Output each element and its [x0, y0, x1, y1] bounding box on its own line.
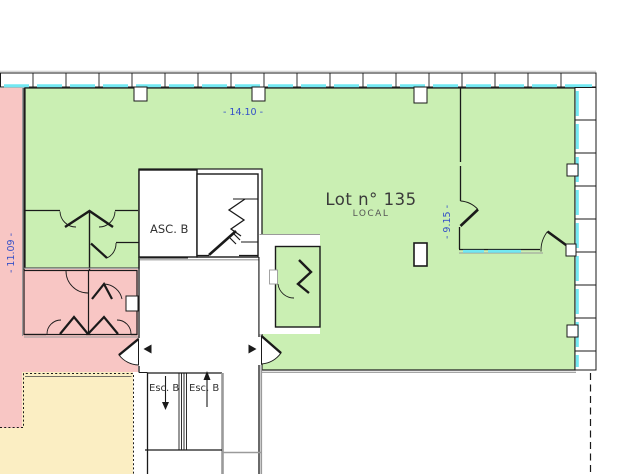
lot-number-label: Lot n° 135	[325, 190, 417, 209]
dimension-right: - 9.15 -	[442, 193, 454, 251]
door-jamb	[566, 244, 576, 256]
stair-divider	[179, 373, 187, 450]
corridor-arrow-left-icon	[144, 345, 152, 354]
inner-room	[260, 234, 321, 334]
lot-type-label: LOCAL	[325, 209, 417, 219]
lobby-room	[197, 174, 258, 257]
corridor-arrow-right-icon	[249, 345, 257, 354]
elevator-room	[139, 170, 197, 257]
elevator-label: ASC. B	[150, 222, 188, 236]
stair-left-label: Esc. B	[149, 383, 179, 394]
pilaster	[567, 164, 578, 176]
floor-plan: Lot n° 135 LOCAL ASC. B Esc. B Esc. B - …	[0, 0, 631, 474]
column	[414, 243, 427, 266]
corridor	[119, 257, 281, 474]
stair-right-label: Esc. B	[189, 383, 219, 394]
pilaster	[252, 87, 265, 101]
dimension-top: - 14.10 -	[218, 107, 268, 118]
door-opening	[270, 270, 278, 284]
pilaster	[567, 325, 578, 337]
duct	[126, 296, 138, 311]
pilaster	[414, 87, 427, 103]
stair-down-arrow-icon	[162, 402, 169, 410]
stair-up-arrow-icon	[204, 371, 211, 380]
pilaster	[134, 87, 147, 101]
floor-plan-drawing	[0, 0, 631, 474]
dimension-left: - 11.09 -	[6, 224, 18, 282]
